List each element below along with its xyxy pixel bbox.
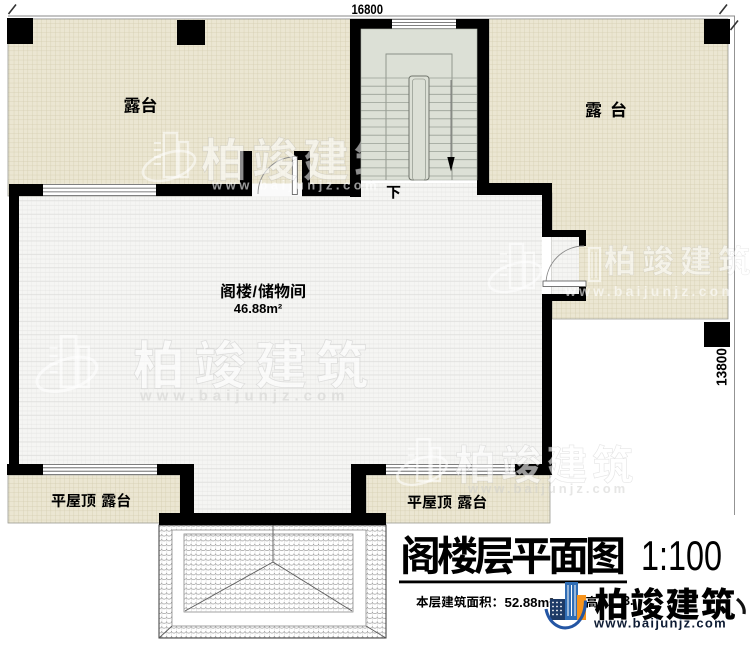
svg-text:46.88m²: 46.88m² — [234, 301, 283, 316]
svg-text:13800: 13800 — [714, 348, 731, 386]
svg-text:52.88m²: 52.88m² — [505, 595, 555, 610]
svg-text:www.baijunjz.com: www.baijunjz.com — [467, 481, 628, 496]
svg-text:www.baijunjz.com: www.baijunjz.com — [593, 616, 727, 631]
svg-text:www.baijunjz.com: www.baijunjz.com — [211, 178, 380, 193]
svg-text:16800: 16800 — [352, 2, 384, 17]
svg-text:www.baijunjz.com: www.baijunjz.com — [139, 388, 349, 405]
svg-text:1:100: 1:100 — [641, 532, 722, 579]
svg-text:/: / — [253, 284, 258, 301]
svg-text:www.baijunjz.com: www.baijunjz.com — [564, 283, 737, 299]
